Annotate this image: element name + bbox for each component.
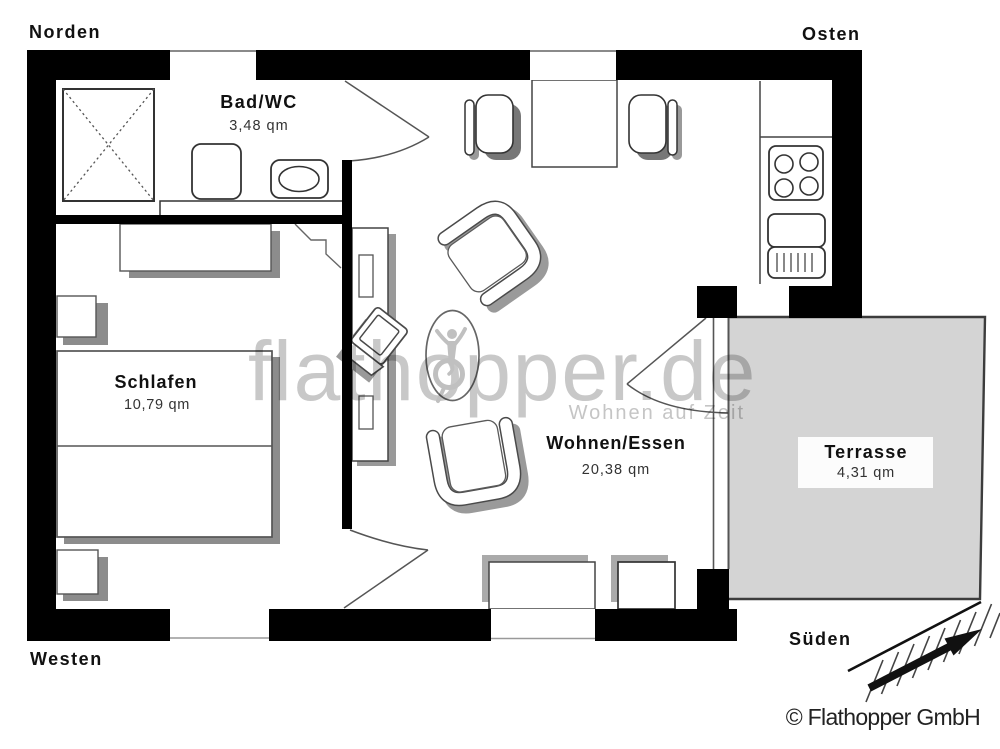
svg-text:Terrasse: Terrasse (824, 442, 907, 462)
svg-text:Wohnen auf Zeit: Wohnen auf Zeit (569, 402, 745, 424)
svg-text:Norden: Norden (29, 22, 101, 42)
svg-text:20,38 qm: 20,38 qm (582, 462, 650, 478)
svg-text:Süden: Süden (789, 629, 852, 649)
svg-text:4,31 qm: 4,31 qm (837, 465, 895, 481)
svg-text:Osten: Osten (802, 24, 861, 44)
svg-text:© Flathopper GmbH: © Flathopper GmbH (786, 704, 980, 730)
svg-text:Westen: Westen (30, 649, 103, 669)
svg-text:Bad/WC: Bad/WC (220, 92, 297, 112)
svg-text:10,79 qm: 10,79 qm (124, 397, 190, 413)
svg-text:Schlafen: Schlafen (114, 372, 197, 392)
svg-text:3,48 qm: 3,48 qm (229, 118, 288, 134)
svg-text:Wohnen/Essen: Wohnen/Essen (546, 433, 686, 453)
